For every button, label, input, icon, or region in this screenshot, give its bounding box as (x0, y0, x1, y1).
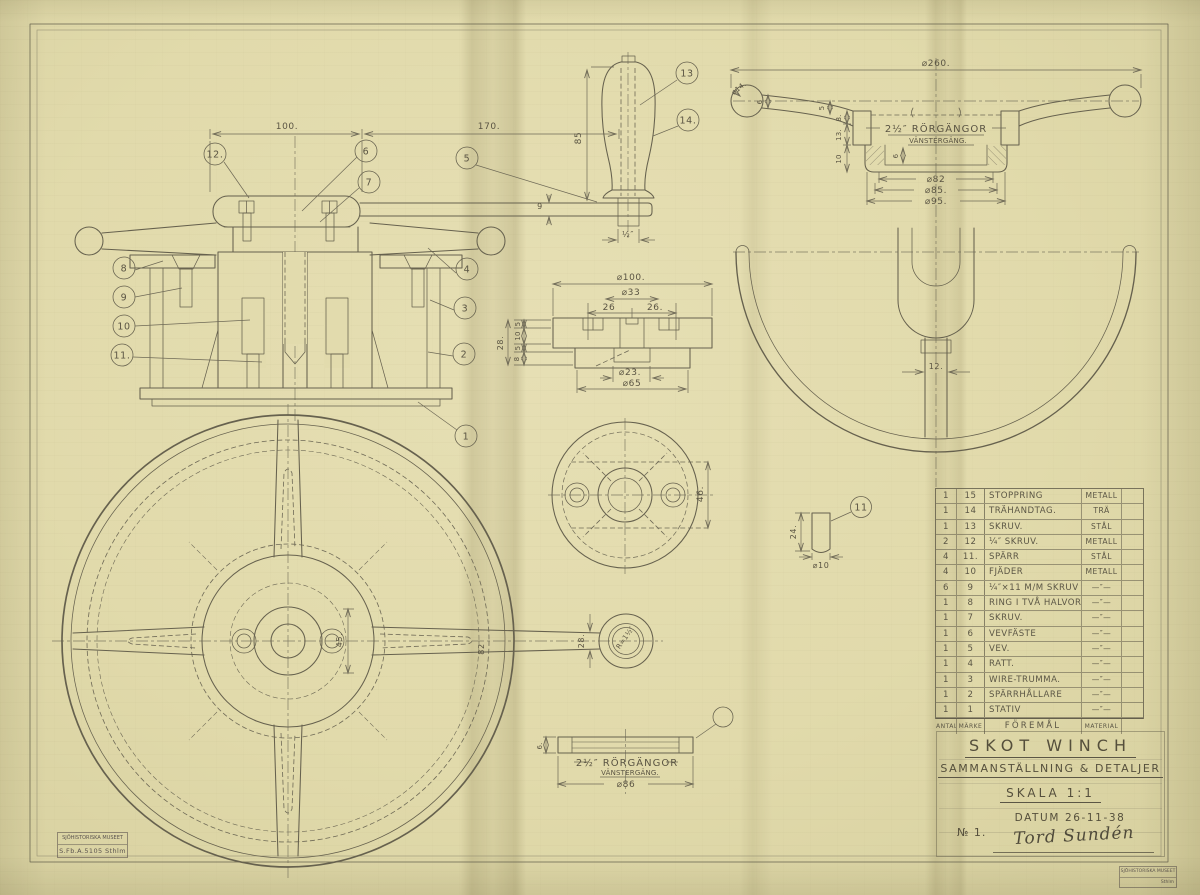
dim-label: 10 (835, 154, 843, 163)
archive-stamp-left: SJÖHISTORISKA MUSEET S.Fb.A.5105 Sthlm (57, 832, 128, 858)
table-row: 12SPÄRRHÅLLARE—″— (936, 688, 1143, 703)
stamp-text: Sthlm (1120, 878, 1176, 888)
table-row: 115STOPPRINGMETALL (936, 489, 1143, 504)
balloon-7: 7 (366, 178, 373, 189)
view-pawl-detail: 24. ⌀10 11 (789, 497, 872, 571)
table-row: 411.SPÄRRSTÅL (936, 550, 1143, 565)
dim-label: 12. (929, 362, 944, 371)
table-row: 410FJÄDERMETALL (936, 565, 1143, 580)
dim-label: 46. (696, 486, 706, 502)
balloon-10: 10 (117, 322, 130, 333)
dim-label: 100. (276, 122, 298, 132)
view-handle-detail: 85 ½″ 13 14. (574, 52, 699, 243)
table-row: 14RATT.—″— (936, 657, 1143, 672)
dim-label: ⌀86 (617, 780, 636, 790)
balloon-9: 9 (121, 293, 128, 304)
view-main-assembly: 100. 170. (75, 122, 652, 447)
dim-label: ½″ (622, 230, 634, 239)
signature: Tord Sundén (995, 822, 1154, 850)
dim-label: 10 (514, 331, 522, 340)
signature-line (993, 852, 1154, 853)
balloon-8: 8 (121, 264, 128, 275)
dim-label: 26. (647, 303, 663, 313)
dim-label: 28. (577, 634, 586, 649)
balloon-2: 2 (461, 350, 468, 361)
dim-label: ⌀10 (813, 561, 830, 570)
balloon-12: 12. (207, 150, 224, 161)
parts-table-rows: 115STOPPRINGMETALL114TRÄHANDTAG.TRÄ113SK… (936, 489, 1143, 718)
balloon-11: 11. (114, 351, 131, 362)
table-row: 16VEVFÄSTE—″— (936, 627, 1143, 642)
dim-label: 170. (478, 122, 500, 132)
dim-label: ⌀23. (619, 368, 641, 378)
table-row: 113SKRUV.STÅL (936, 520, 1143, 535)
dim-label: ⌀82 (927, 175, 946, 185)
dim-label: 8 (513, 357, 521, 362)
sheet-number: № 1. (957, 826, 986, 839)
parts-table: 115STOPPRINGMETALL114TRÄHANDTAG.TRÄ113SK… (935, 488, 1144, 719)
title-block: SKOT WINCH SAMMANSTÄLLNING & DETALJER SK… (936, 731, 1165, 857)
dim-label: ⌀95. (925, 197, 947, 207)
dim-label: 85 (574, 132, 584, 145)
drawing-title: SKOT WINCH (965, 736, 1136, 758)
dim-label: 8. (835, 114, 843, 121)
table-row: 13WIRE-TRUMMA.—″— (936, 673, 1143, 688)
archive-stamp-right: SJÖHISTORISKA MUSEET Sthlm (1119, 866, 1177, 888)
radius-label: R=1½″ (615, 625, 636, 651)
stamp-text: SJÖHISTORISKA MUSEET (1120, 867, 1176, 878)
balloon-4: 4 (464, 265, 471, 276)
dim-label: 5 (514, 322, 522, 327)
dim-label: 6 (756, 99, 764, 104)
dim-label: 28. (496, 336, 505, 351)
thread-note: VÄNSTERGÄNG. (909, 136, 967, 145)
table-row: 212¼″ SKRUV.METALL (936, 535, 1143, 550)
view-wheel-front: R=1½″ 28. 45. 82 (52, 404, 663, 878)
balloon-5: 5 (464, 154, 471, 165)
table-row: 15VEV.—″— (936, 642, 1143, 657)
dim-label: 5 (514, 346, 522, 351)
dim-label: ⌀33 (622, 288, 641, 298)
balloon-1: 1 (463, 432, 470, 443)
dim-label: ⌀85. (925, 186, 947, 196)
balloon-6: 6 (363, 147, 370, 158)
thread-note: 2½″ RÖRGÄNGOR (885, 122, 987, 135)
view-wheel-section: ⌀260. ⌀14. 6 5 8. 13. 10 (730, 58, 1141, 487)
dim-label: 24. (789, 525, 798, 540)
table-row: 114TRÄHANDTAG.TRÄ (936, 504, 1143, 519)
drawing-scale: SKALA 1:1 (1000, 786, 1101, 803)
table-row: 17SKRUV.—″— (936, 611, 1143, 626)
balloon-11-detail: 11 (854, 503, 867, 514)
dim-label: 5 (818, 106, 826, 111)
view-ring-section: 2½″ RÖRGÄNGOR VÄNSTERGÄNG. ⌀86 6. (536, 707, 733, 794)
view-hub-plan: 46. (548, 418, 714, 574)
balloon-15-empty (713, 707, 733, 727)
dim-label: 9 (537, 202, 543, 211)
table-row: 69¼″×11 M/M SKRUV—″— (936, 581, 1143, 596)
balloon-13: 13 (680, 69, 693, 80)
dim-label: 45. (335, 633, 344, 648)
dim-label: 82 (477, 643, 486, 654)
callout-balloons: 12. 6 7 5 8 9 10 11. 4 3 2 1 (111, 140, 597, 447)
dim-label: ⌀100. (617, 273, 645, 283)
table-row: 18RING I TVÅ HALVOR.—″— (936, 596, 1143, 611)
balloon-14: 14. (680, 116, 697, 127)
thread-note: 2½″ RÖRGÄNGOR (576, 756, 678, 769)
dim-label: 26 (603, 303, 616, 313)
dim-label: ⌀14. (730, 80, 748, 96)
drawing-subtitle: SAMMANSTÄLLNING & DETALJER (938, 762, 1162, 778)
dim-label: 6 (892, 153, 900, 158)
thread-note: VÄNSTERGÄNG. (601, 768, 659, 777)
view-hub-section: ⌀100. ⌀33 26 26. ⌀23. ⌀65 (496, 273, 712, 393)
drawing-sheet: 100. 170. (0, 0, 1200, 895)
balloon-3: 3 (462, 304, 469, 315)
stamp-text: SJÖHISTORISKA MUSEET (58, 833, 127, 845)
dim-label: ⌀260. (922, 59, 950, 69)
dim-label: 6. (536, 742, 544, 749)
dim-label: ⌀65 (623, 379, 642, 389)
dim-label: 13. (835, 129, 843, 141)
table-row: 11STATIV—″— (936, 703, 1143, 718)
stamp-accession-number: S.Fb.A.5105 Sthlm (58, 845, 127, 858)
